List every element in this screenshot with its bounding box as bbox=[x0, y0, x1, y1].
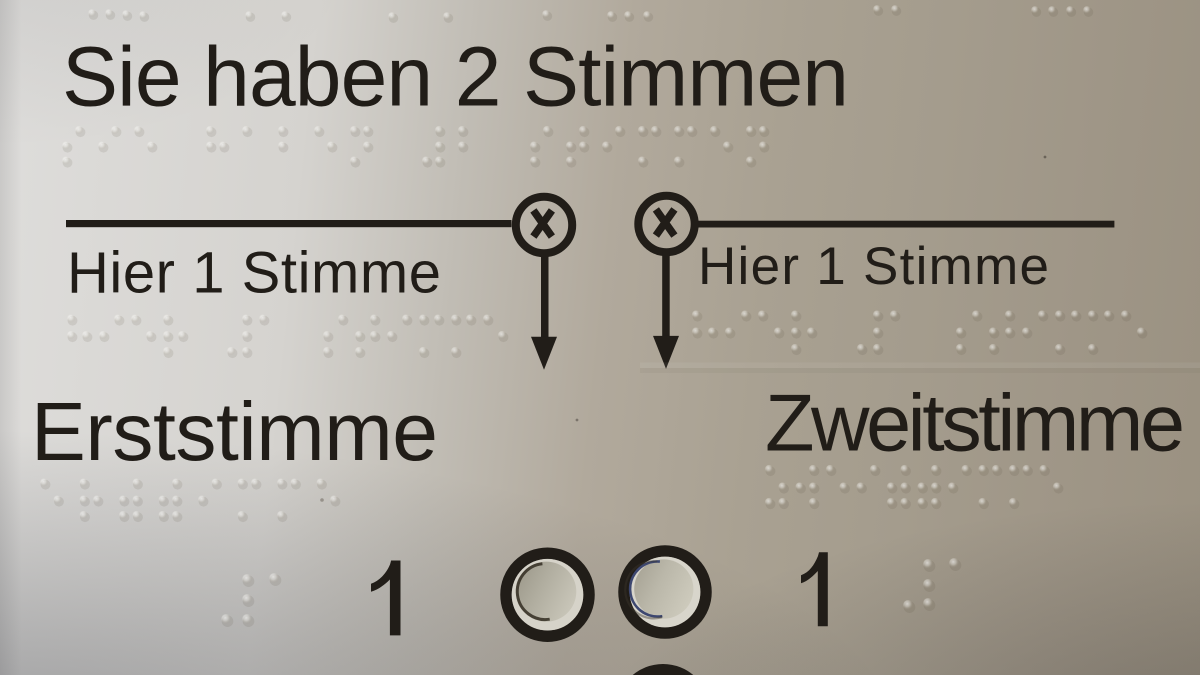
svg-text:Hier 1 Stimme: Hier 1 Stimme bbox=[67, 240, 441, 305]
svg-text:Sie haben 2 Stimmen: Sie haben 2 Stimmen bbox=[62, 29, 849, 123]
svg-text:Erststimme: Erststimme bbox=[31, 387, 438, 478]
svg-text:Hier 1 Stimme: Hier 1 Stimme bbox=[698, 237, 1049, 296]
svg-text:Zweitstimme: Zweitstimme bbox=[765, 379, 1185, 469]
